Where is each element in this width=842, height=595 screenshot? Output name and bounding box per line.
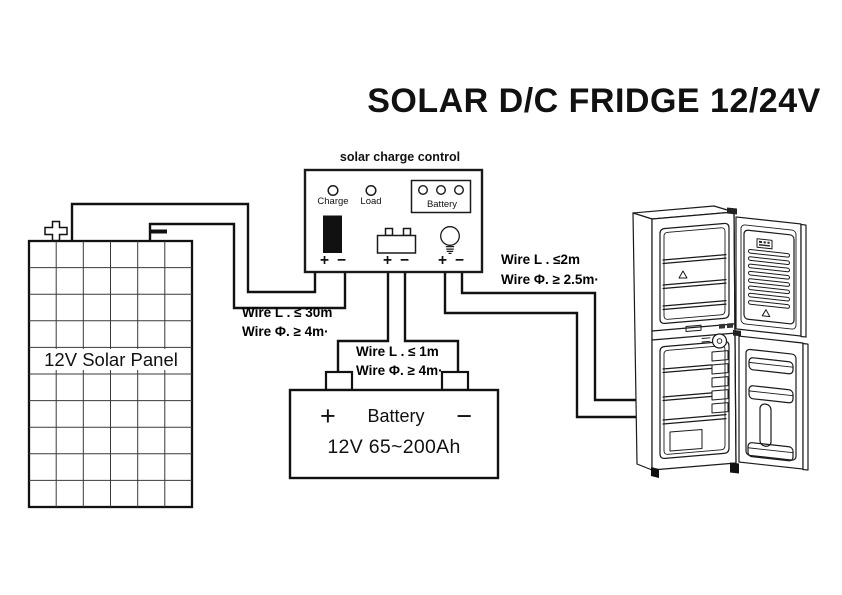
battery-title-row: + Battery −: [320, 401, 472, 431]
battery-plus-label: +: [320, 402, 336, 430]
battery-minus-label: −: [456, 402, 472, 430]
wire-spec-panel-length: Wire L . ≤ 30m: [242, 304, 332, 323]
solar-panel-label: 12V Solar Panel: [30, 349, 192, 371]
battery-name: Battery: [367, 406, 424, 427]
battery-plus-mark: +: [383, 253, 392, 269]
wire-spec-fridge-diameter: Wire Φ. ≥ 2.5m·: [501, 270, 599, 290]
solar-plus-mark: +: [320, 253, 329, 269]
wire-spec-fridge: Wire L . ≤2m Wire Φ. ≥ 2.5m·: [501, 250, 599, 290]
battery-terminal-negative: [442, 372, 468, 390]
battery-terminal-marks: + −: [383, 253, 409, 269]
wire-spec-battery-length: Wire L . ≤ 1m: [356, 343, 443, 362]
load-terminal-marks: + −: [438, 253, 464, 269]
battery-spec: 12V 65~200Ah: [290, 436, 498, 459]
battery-terminal-positive: [326, 372, 352, 390]
load-led: [366, 186, 376, 196]
wire-load-negative: [462, 271, 636, 400]
fridge-door: [739, 336, 808, 470]
wire-spec-battery-diameter: Wire Φ. ≥ 4m·: [356, 362, 443, 381]
page-title: SOLAR D/C FRIDGE 12/24V: [367, 82, 821, 121]
wire-spec-fridge-length: Wire L . ≤2m: [501, 250, 599, 270]
freezer-door: [736, 217, 806, 337]
battery-minus-mark: −: [400, 253, 409, 269]
wire-spec-panel-diameter: Wire Φ. ≥ 4m·: [242, 323, 332, 342]
panel-minus-terminal: [151, 230, 167, 234]
fridge-illustration: [633, 206, 808, 478]
load-plus-mark: +: [438, 253, 447, 269]
load-led-label: Load: [341, 196, 401, 207]
controller-label: solar charge control: [330, 150, 470, 164]
solar-input-icon: [323, 216, 342, 254]
panel-plus-terminal: [45, 222, 67, 241]
solar-minus-mark: −: [337, 253, 346, 269]
wire-spec-panel: Wire L . ≤ 30m Wire Φ. ≥ 4m·: [242, 304, 332, 341]
wire-spec-battery: Wire L . ≤ 1m Wire Φ. ≥ 4m·: [356, 343, 443, 380]
solar-terminal-marks: + −: [320, 253, 346, 269]
charge-led: [328, 186, 338, 196]
thermostat-knob: [713, 334, 727, 348]
battery-led-label: Battery: [412, 199, 472, 210]
load-minus-mark: −: [455, 253, 464, 269]
diagram-canvas: SOLAR D/C FRIDGE 12/24V solar charge con…: [0, 0, 842, 595]
